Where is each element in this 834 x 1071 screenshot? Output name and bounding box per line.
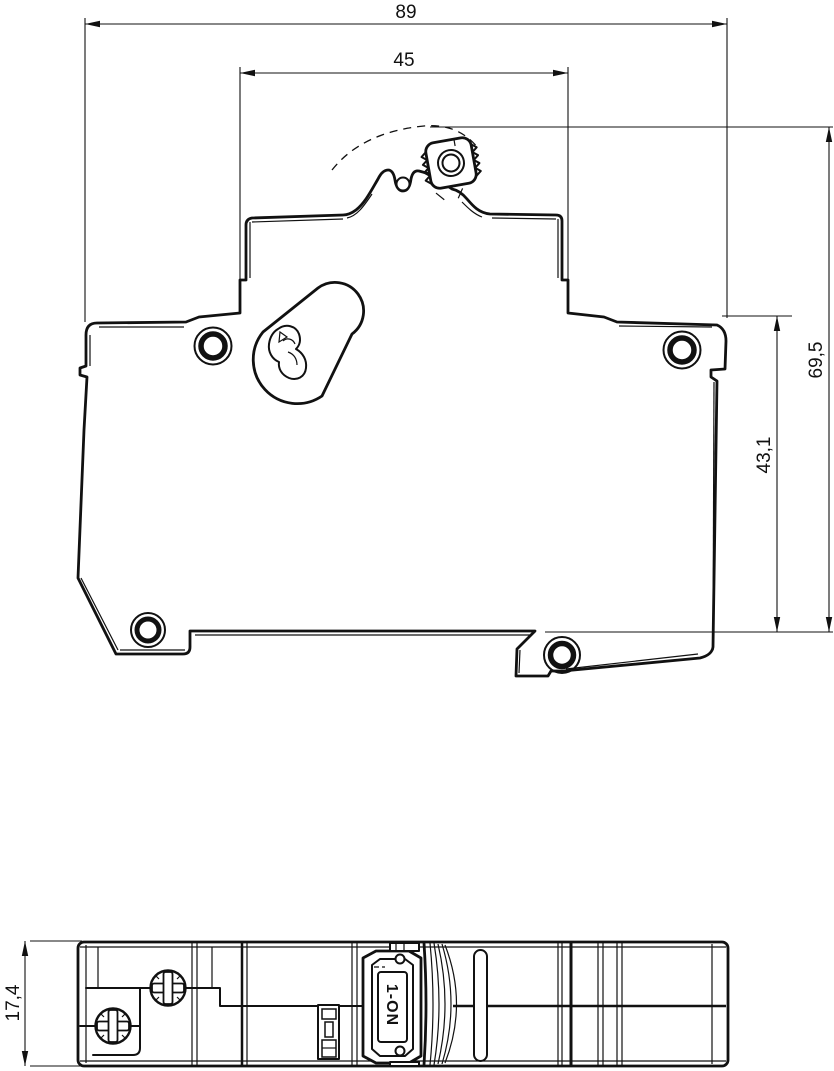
phillips-screw-upper bbox=[151, 971, 186, 1006]
dim-body-height: 43,1 bbox=[722, 316, 792, 632]
bottom-view: 1-ON bbox=[3, 941, 728, 1066]
module-toggle: 1-ON bbox=[363, 943, 421, 1066]
toggle-pin-bottom bbox=[396, 1047, 405, 1056]
toggle-bottom-tab bbox=[390, 1062, 419, 1066]
din-clip-slider bbox=[318, 1005, 339, 1059]
dim-module-width-label: 17,4 bbox=[3, 984, 24, 1021]
toggle-pin-top bbox=[396, 955, 405, 964]
side-view: 89 45 69,5 43,1 bbox=[78, 2, 833, 676]
toggle-marking: 1-ON bbox=[383, 984, 400, 1026]
toggle-pivot-pin bbox=[397, 178, 410, 191]
dim-total-height-label: 69,5 bbox=[806, 342, 827, 379]
vent-slot bbox=[474, 950, 487, 1061]
phillips-screw-lower bbox=[96, 1009, 131, 1044]
breaker-dimension-drawing: 89 45 69,5 43,1 bbox=[0, 0, 834, 1071]
dim-module-width: 17,4 bbox=[3, 941, 82, 1066]
dim-handle-width-label: 45 bbox=[393, 50, 414, 71]
housing-outline bbox=[78, 170, 726, 676]
dim-body-height-label: 43,1 bbox=[754, 437, 775, 474]
technical-drawing-page: 89 45 69,5 43,1 bbox=[0, 0, 834, 1071]
dim-overall-width-label: 89 bbox=[395, 2, 416, 23]
